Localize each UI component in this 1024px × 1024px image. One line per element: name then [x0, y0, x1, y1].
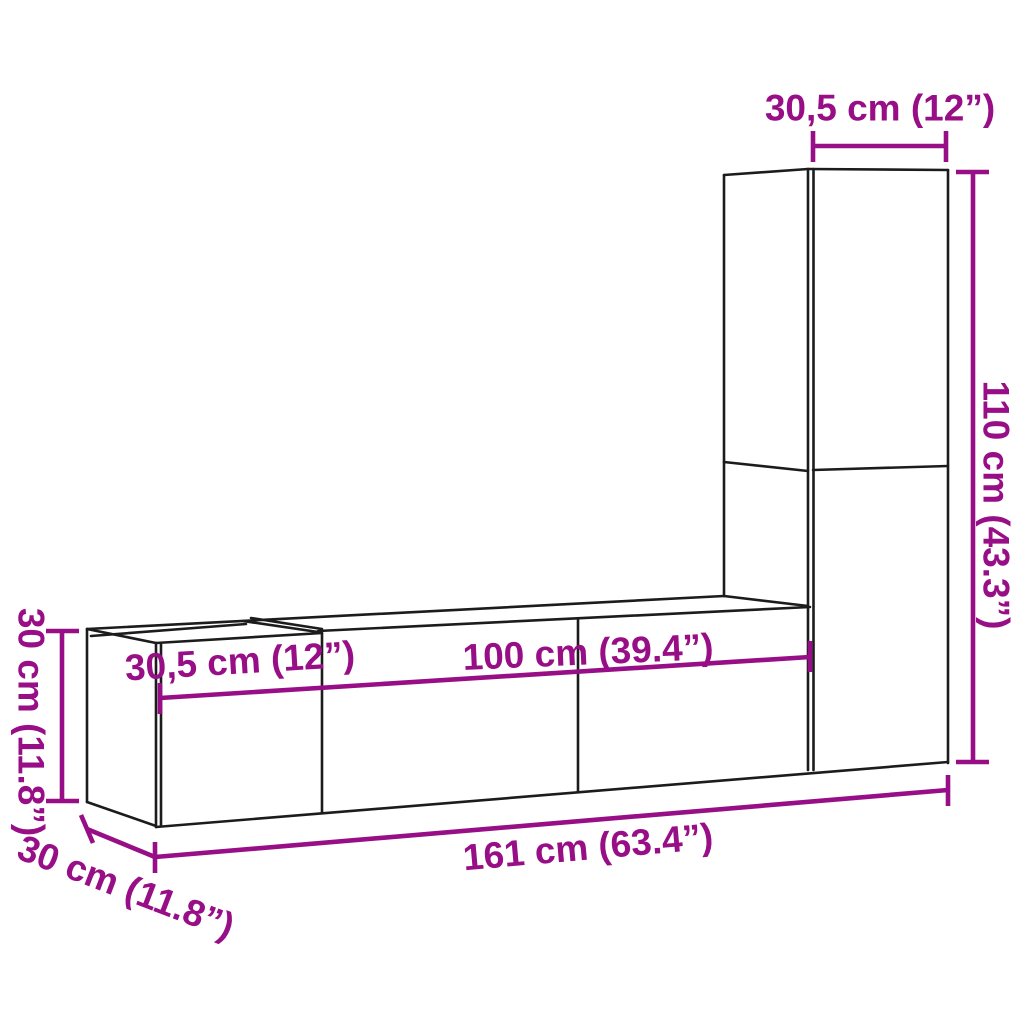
tall-cabinet-front-divider	[813, 466, 948, 470]
dim-upper-unit-width: 30,5 cm (12”)	[765, 88, 995, 163]
dim-label-upper-unit-width: 30,5 cm (12”)	[765, 88, 995, 129]
dim-label-left-unit-height: 30 cm (11.8”)	[11, 608, 52, 836]
row-back-top-edge	[87, 596, 724, 629]
tall-cabinet-side-bottom-edge	[724, 596, 808, 606]
dimension-diagram-page: 30,5 cm (12”) 110 cm (43.3”) 30 cm (11.8…	[0, 0, 1024, 1024]
tall-cabinet-top-edge	[808, 169, 948, 170]
tall-cabinet-side-divider	[724, 462, 808, 471]
low-cabinet-row	[87, 596, 948, 827]
tall-cabinet	[724, 169, 948, 770]
cabinet-outlines	[87, 169, 948, 827]
dim-unit-depth: 30 cm (11.8”)	[12, 815, 240, 947]
dim-total-width: 161 cm (63.4”)	[155, 775, 948, 878]
center-cabinet-front-top-edge	[318, 607, 810, 631]
dim-line-depth	[87, 829, 155, 857]
furniture-dimension-diagram: 30,5 cm (12”) 110 cm (43.3”) 30 cm (11.8…	[0, 0, 1024, 1024]
dim-label-total-width: 161 cm (63.4”)	[461, 816, 715, 879]
dim-label-tall-unit-height: 110 cm (43.3”)	[976, 381, 1017, 630]
row-front-bottom-edge	[156, 762, 948, 827]
dim-tall-unit-height: 110 cm (43.3”)	[956, 172, 1017, 762]
dim-label-center-unit-width: 100 cm (39.4”)	[462, 626, 714, 678]
dim-left-unit-height: 30 cm (11.8”)	[11, 608, 80, 836]
left-cabinet-side-bottom-edge	[87, 802, 156, 826]
tall-cabinet-side-top-edge	[724, 169, 808, 175]
